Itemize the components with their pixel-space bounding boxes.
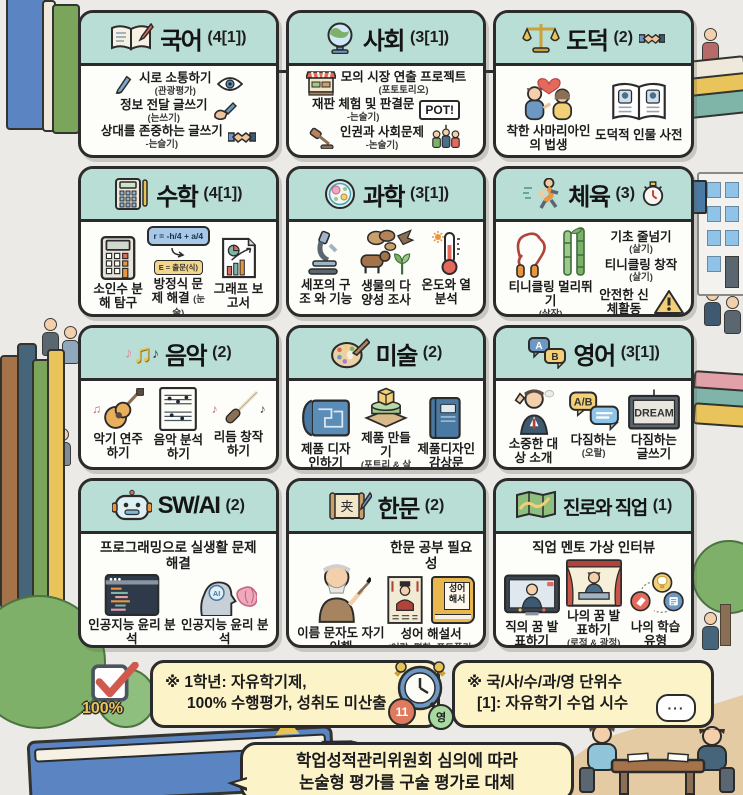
item-sub: (관광평가) [155, 87, 196, 97]
gavel-icon [309, 127, 335, 149]
formula-box: r = -h/4 + a/4 [147, 226, 211, 246]
card-english-body: 소중한 대상 소개 A/B 다짐하는 (오랄) [496, 381, 691, 469]
item-label: 안전한 신체활동 [598, 288, 650, 316]
note-line: 학업성적관리위원회 심의에 따라 [296, 750, 518, 772]
card-math-header: 수학 (4[1]) [81, 169, 276, 222]
item-label: 소인수 분해 탐구 [88, 282, 148, 310]
decor-tree-right-trunk [720, 604, 731, 646]
hanja-poster-icon [387, 576, 423, 624]
scholar-icon [311, 560, 371, 624]
microscope-icon [306, 230, 346, 276]
pen-icon [114, 73, 134, 95]
item-label: 제품 만들기 [356, 431, 416, 459]
card-count: (4[1]) [203, 185, 242, 203]
card-title: 과학 [363, 177, 404, 212]
wildlife-icon [357, 229, 415, 277]
stopwatch-icon [641, 181, 665, 207]
card-english-header: A B 영어 (3[1]) [496, 328, 691, 381]
units-badge-11: 11 [388, 698, 416, 726]
item-label: 소중한 대상 소개 [503, 437, 563, 465]
card-title: 영어 [574, 336, 615, 371]
card-career-header: 진로와 직업 (1) [496, 481, 691, 534]
card-count: (2) [225, 497, 245, 515]
item-label: 리듬 창작하기 [208, 430, 268, 458]
item-label: 제품 디자인하기 [296, 442, 356, 470]
card-music: ♪♫♪ 음악 (2) ♫ [78, 325, 279, 470]
handshake-icon [228, 129, 256, 145]
card-top-text: 직업 멘토 가상 인터뷰 [532, 540, 655, 556]
decor-books-top-left [0, 0, 80, 140]
item-sub: -논술기) [366, 141, 399, 151]
scales-icon [522, 22, 560, 54]
item-label: 기초 줄넘기 [610, 230, 671, 244]
item-label: 인공지능 윤리 분석 [181, 618, 269, 646]
card-title: SW/AI [158, 492, 220, 520]
item-sub: (살기) [629, 245, 653, 255]
stage-presentation-icon [566, 559, 622, 607]
item-sub: (오랄) [582, 449, 606, 459]
card-pe-header: 체육 (3) [496, 169, 691, 222]
product-blocks-icon [362, 385, 410, 429]
guitar-icon [102, 388, 144, 430]
card-count: (3) [615, 185, 635, 203]
sheet-music-icon [159, 387, 197, 431]
item-label: 다짐하는 [571, 433, 617, 447]
decor-book [693, 402, 743, 428]
calculator-pencil-icon [114, 177, 150, 211]
speech-tail [234, 779, 248, 788]
note-line: 논술형 평가를 구술 평가로 대체 [299, 772, 515, 794]
checkbox-icon [84, 662, 142, 704]
svg-text:夹: 夹 [340, 499, 353, 514]
card-sw-ai-header: SW/AI (2) [81, 481, 276, 534]
calculator-icon [100, 236, 136, 280]
item-label: 인공지능 윤리 분석 [88, 618, 176, 646]
item-sub: (포트리 & 살작) [356, 461, 416, 470]
hundred-percent-badge: 100% [82, 700, 123, 718]
svg-text:A: A [535, 341, 542, 352]
decor-book [688, 89, 743, 119]
card-title: 체육 [568, 177, 609, 212]
protest-sign: POT! [419, 100, 460, 120]
svg-text:B: B [551, 352, 558, 363]
item-label: 그래프 보고서 [208, 282, 268, 310]
item-label: 제품디자인 감상문 [416, 442, 476, 470]
warning-triangle-icon [654, 289, 684, 315]
decor-book [52, 4, 80, 134]
decor-books-left-shelf [0, 335, 70, 625]
ai-head-brain-icon: AI [193, 574, 257, 616]
portrait-book-icon [609, 80, 669, 126]
card-math: 수학 (4[1]) 소 [78, 166, 279, 317]
item-label: 착한 사마리아인의 법생 [503, 124, 593, 152]
formula-sub-box: E = 출문(식) [154, 260, 203, 275]
card-ethics: 도덕 (2) [493, 10, 694, 158]
item-label: 모의 시장 연출 프로젝트 [341, 70, 466, 84]
item-sub: (어랄, 평창, 포트폴리) [388, 644, 475, 648]
item-label: 정보 전달 글쓰기 [120, 98, 207, 112]
card-sw-ai: SW/AI (2) 프로그래밍으로 실생활 문제 해결 [78, 478, 279, 648]
card-korean-body: 시로 소통하기 (관광평가) 정보 전달 글쓰기 (는쓰기) 상대를 존중하는 … [81, 66, 276, 155]
palette-icon [330, 337, 370, 369]
globe-icon [323, 22, 357, 54]
decor-books-right-mid [688, 370, 743, 440]
card-pe-body: 티니클링 멀리뛰기 (살작) 기초 줄넘기 (살기) 티니클링 창작 (살기) … [496, 222, 691, 317]
units-badge-english: 영 [428, 704, 454, 730]
market-stall-icon [306, 70, 336, 96]
card-ethics-body: 착한 사마리아인의 법생 도덕적 인물 사전 [496, 66, 691, 156]
note-assessment-replacement: 학업성적관리위원회 심의에 따라 논술형 평가를 구술 평가로 대체 [240, 742, 574, 795]
svg-text:DREAM: DREAM [634, 407, 674, 419]
scroll-brush-icon: 夹 [328, 491, 372, 521]
note-line: 100% 수행평가, 성취도 미산출 [165, 694, 425, 715]
video-call-icon [504, 574, 560, 618]
decor-person-right-3 [700, 612, 720, 650]
protest-crowd-icon [429, 124, 463, 152]
caring-couple-icon [518, 70, 580, 122]
thermometer-icon [431, 230, 461, 276]
card-career: 진로와 직업 (1) 직업 멘토 가상 인터뷰 [493, 478, 694, 648]
note-line: ※ 국/사/수/과/영 단위수 [467, 673, 699, 694]
idiom-book-label: 성어 해서 [444, 582, 470, 610]
idiom-book-icon: 성어 해서 [431, 576, 475, 624]
card-art: 미술 (2) 제품 디자인하기 [286, 325, 487, 470]
card-count: (2) [613, 29, 633, 47]
item-label: 재판 체험 및 판결문 [312, 97, 414, 111]
card-count: (2) [212, 344, 232, 362]
item-sub: (포토토리오) [378, 86, 428, 96]
card-social-studies: 사회 (3[1]) 모의 시장 연출 프로젝트 [286, 10, 487, 158]
eye-icon [217, 76, 243, 92]
item-label: 도덕적 인물 사전 [595, 128, 682, 142]
card-korean-header: 국어 (4[1]) [81, 13, 276, 66]
svg-text:A/B: A/B [573, 397, 592, 409]
map-icon [515, 491, 557, 521]
code-editor-icon [104, 574, 160, 616]
card-count: (3[1]) [410, 185, 449, 203]
writing-hand-icon [213, 102, 237, 120]
card-english: A B 영어 (3[1]) [493, 325, 694, 470]
card-career-body: 직업 멘토 가상 인터뷰 [496, 534, 691, 648]
item-label: 티니클링 창작 [605, 258, 677, 272]
item-sub: (살기) [629, 273, 653, 283]
card-count: (1) [653, 497, 673, 515]
card-music-header: ♪♫♪ 음악 (2) [81, 328, 276, 381]
bamboo-poles-icon [560, 226, 590, 278]
robot-icon [112, 489, 152, 523]
petri-dish-icon [323, 178, 357, 210]
card-science-body: 세포의 구조 와 기능 [289, 222, 484, 314]
card-title: 사회 [363, 21, 404, 56]
music-note-glyph: ♪ [212, 402, 218, 416]
card-title: 도덕 [566, 21, 607, 56]
learning-type-circles-icon [627, 572, 685, 618]
arrow-down-icon [170, 248, 186, 258]
card-title: 진로와 직업 [563, 493, 647, 520]
card-title: 국어 [160, 21, 201, 56]
dream-board-icon: DREAM [627, 389, 681, 431]
item-sub: -는슬기) [146, 140, 179, 150]
item-label: 시로 소통하기 [139, 71, 211, 85]
item-label: 악기 연주하기 [88, 432, 148, 460]
card-title: 음악 [165, 336, 206, 371]
card-title: 수학 [156, 177, 197, 212]
card-title: 한문 [378, 489, 419, 524]
item-label: 방정식 문제 해결 (눈술) [148, 277, 208, 317]
card-count: (3[1]) [410, 29, 449, 47]
card-count: (3[1]) [621, 344, 660, 362]
baton-icon [219, 390, 259, 428]
card-sw-ai-body: 프로그래밍으로 실생활 문제 해결 인공지능 [81, 534, 276, 648]
card-social-header: 사회 (3[1]) [289, 13, 484, 66]
decor-building-right [697, 172, 743, 296]
item-label: 나의 꿈 발표하기 [565, 609, 622, 637]
card-count: (2) [425, 497, 445, 515]
item-sub: (는쓰기) [148, 114, 181, 124]
decor-person-right-2 [722, 296, 742, 334]
item-sub: (살작) [539, 310, 563, 317]
card-music-body: ♫ 악기 연주하기 [81, 381, 276, 467]
card-art-header: 미술 (2) [289, 328, 484, 381]
card-hanja-header: 夹 한문 (2) [289, 481, 484, 534]
item-label: 티니클링 멀리뛰기 [503, 280, 598, 308]
item-label: 온도와 열 분석 [416, 278, 476, 306]
card-hanja: 夹 한문 (2) [286, 478, 487, 648]
item-label: 상대를 존중하는 글쓰기 [101, 124, 223, 138]
card-top-text: 한문 공부 필요성 [386, 540, 476, 571]
item-label: 인권과 사회문제 [340, 125, 424, 139]
design-book-icon [428, 396, 464, 440]
item-label: 다짐하는 글쓰기 [624, 433, 684, 461]
waving-person-icon [511, 385, 555, 435]
card-math-body: 소인수 분해 탐구 r = -h/4 + a/4 E = 출문(식) 방정식 문… [81, 222, 276, 317]
infographic-poster: 국어 (4[1]) 시로 소통하기 (관광평가) 정보 전달 글쓰기 (는쓰기) [0, 0, 743, 795]
card-korean: 국어 (4[1]) 시로 소통하기 (관광평가) 정보 전달 글쓰기 (는쓰기) [78, 10, 279, 158]
item-sub: -는술기) [347, 113, 380, 123]
item-label: 직의 꿈 발표하기 [503, 620, 560, 648]
graph-report-icon [221, 236, 257, 280]
decor-book [6, 0, 46, 130]
card-social-body: 모의 시장 연출 프로젝트 (포토토리오) 재판 체험 및 판결문 -는술기) … [289, 66, 484, 156]
ab-speech-bubbles-icon: A B [528, 337, 568, 369]
card-science-header: 과학 (3[1]) [289, 169, 484, 222]
item-label: 생물의 다양성 조사 [356, 279, 416, 307]
card-science: 과학 (3[1]) 세포의 구조 와 기능 [286, 166, 487, 317]
card-pe: 체육 (3) [493, 166, 694, 317]
item-label: 이름 문자도 자기 이해 [296, 626, 386, 648]
ab-chat-icon: A/B [569, 391, 619, 431]
card-ethics-header: 도덕 (2) [496, 13, 691, 66]
item-label: 음악 분석하기 [148, 433, 208, 461]
card-top-text: 프로그래밍으로 실생활 문제 해결 [93, 540, 263, 571]
ellipsis-bubble: ··· [656, 694, 696, 722]
music-note-glyph: ♪ [260, 402, 266, 416]
card-title: 미술 [376, 336, 417, 371]
item-label: 세포의 구조 와 기능 [296, 278, 356, 306]
decor-book [47, 349, 65, 609]
note-line: ※ 1학년: 자유학기제, [165, 673, 425, 694]
jump-rope-icon [512, 226, 552, 278]
runner-icon [522, 178, 562, 210]
card-count: (2) [423, 344, 443, 362]
item-label: 성어 해설서 [401, 627, 462, 641]
card-count: (4[1]) [207, 29, 246, 47]
svg-text:AI: AI [213, 589, 220, 598]
handshake-icon [639, 31, 665, 46]
card-hanja-body: 이름 문자도 자기 이해 한문 공부 필요성 [289, 534, 484, 648]
item-label: 나의 학습 유형 [627, 620, 684, 648]
item-sub: (로적 & 광정) [567, 639, 620, 648]
decor-tree-right [692, 540, 743, 614]
music-note-glyph: ♫ [92, 402, 101, 416]
subject-cards-grid: 국어 (4[1]) 시로 소통하기 (관광평가) 정보 전달 글쓰기 (는쓰기) [78, 10, 694, 648]
open-book-pencil-icon [110, 23, 154, 53]
card-art-body: 제품 디자인하기 제품 만들기 (포트리 & 살작) [289, 381, 484, 470]
blueprint-icon [301, 396, 351, 440]
music-notes-icon: ♪♫♪ [125, 338, 159, 369]
